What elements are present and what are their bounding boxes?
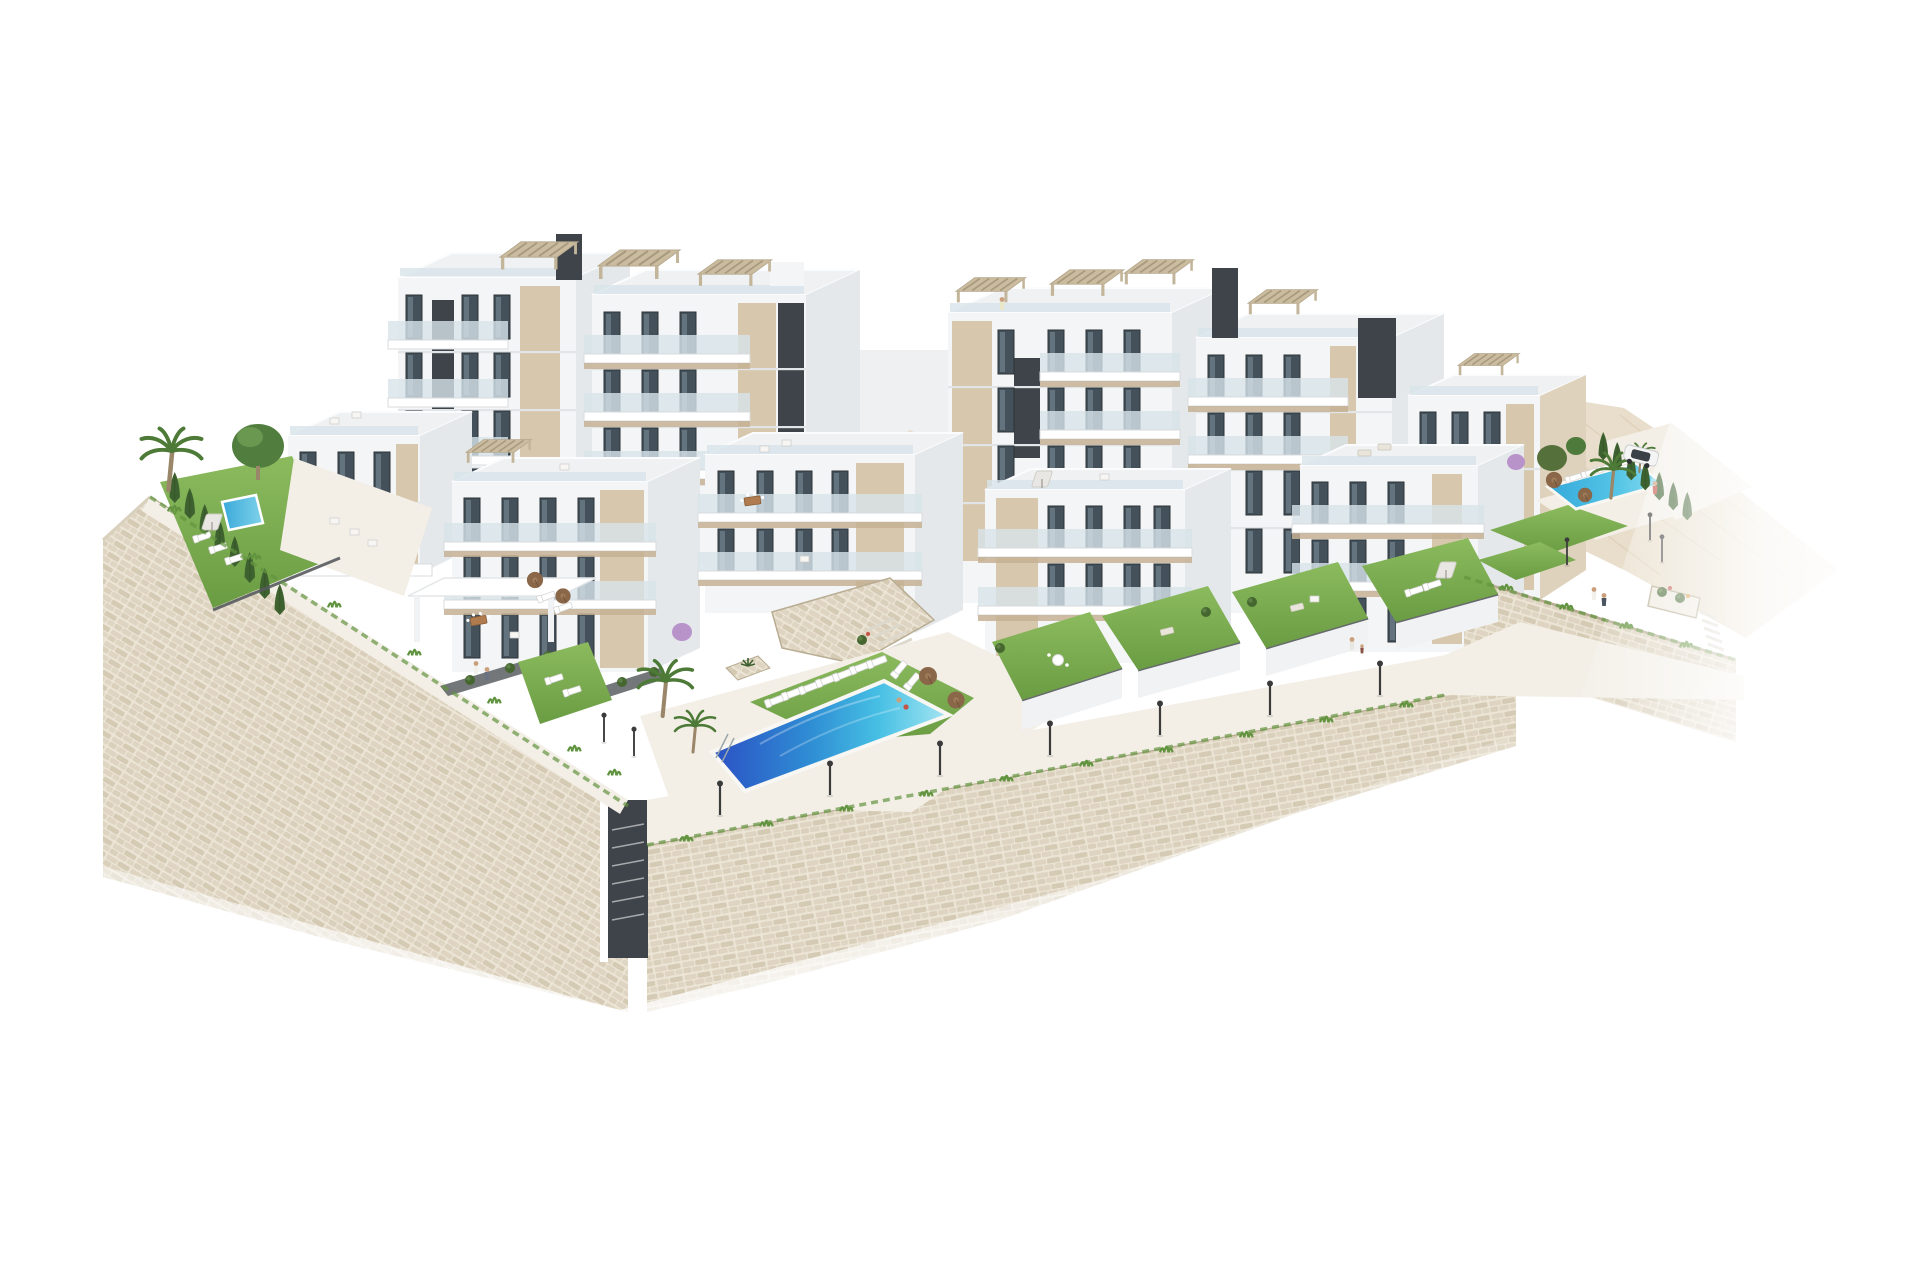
brown-parasol: [555, 588, 570, 603]
stair-core: [1358, 318, 1396, 398]
stair-core: [1014, 358, 1040, 458]
swimmer: [903, 704, 908, 709]
brown-parasol: [947, 691, 964, 708]
brown-parasol: [1578, 488, 1592, 502]
garden-pool: [222, 495, 263, 530]
swimmer: [896, 697, 901, 702]
stair-core: [556, 234, 582, 280]
render-canvas: [0, 0, 1920, 1280]
architectural-render: [0, 0, 1920, 1280]
flowering-shrub: [1507, 454, 1525, 470]
garage-core: [600, 796, 648, 962]
stair-core: [1212, 268, 1238, 338]
brown-parasol: [1546, 472, 1562, 488]
tree: [1537, 445, 1567, 471]
flowering-shrub: [672, 623, 692, 641]
person-on-roof: [1000, 297, 1005, 310]
brown-parasol: [919, 667, 937, 685]
brown-parasol: [527, 572, 543, 588]
